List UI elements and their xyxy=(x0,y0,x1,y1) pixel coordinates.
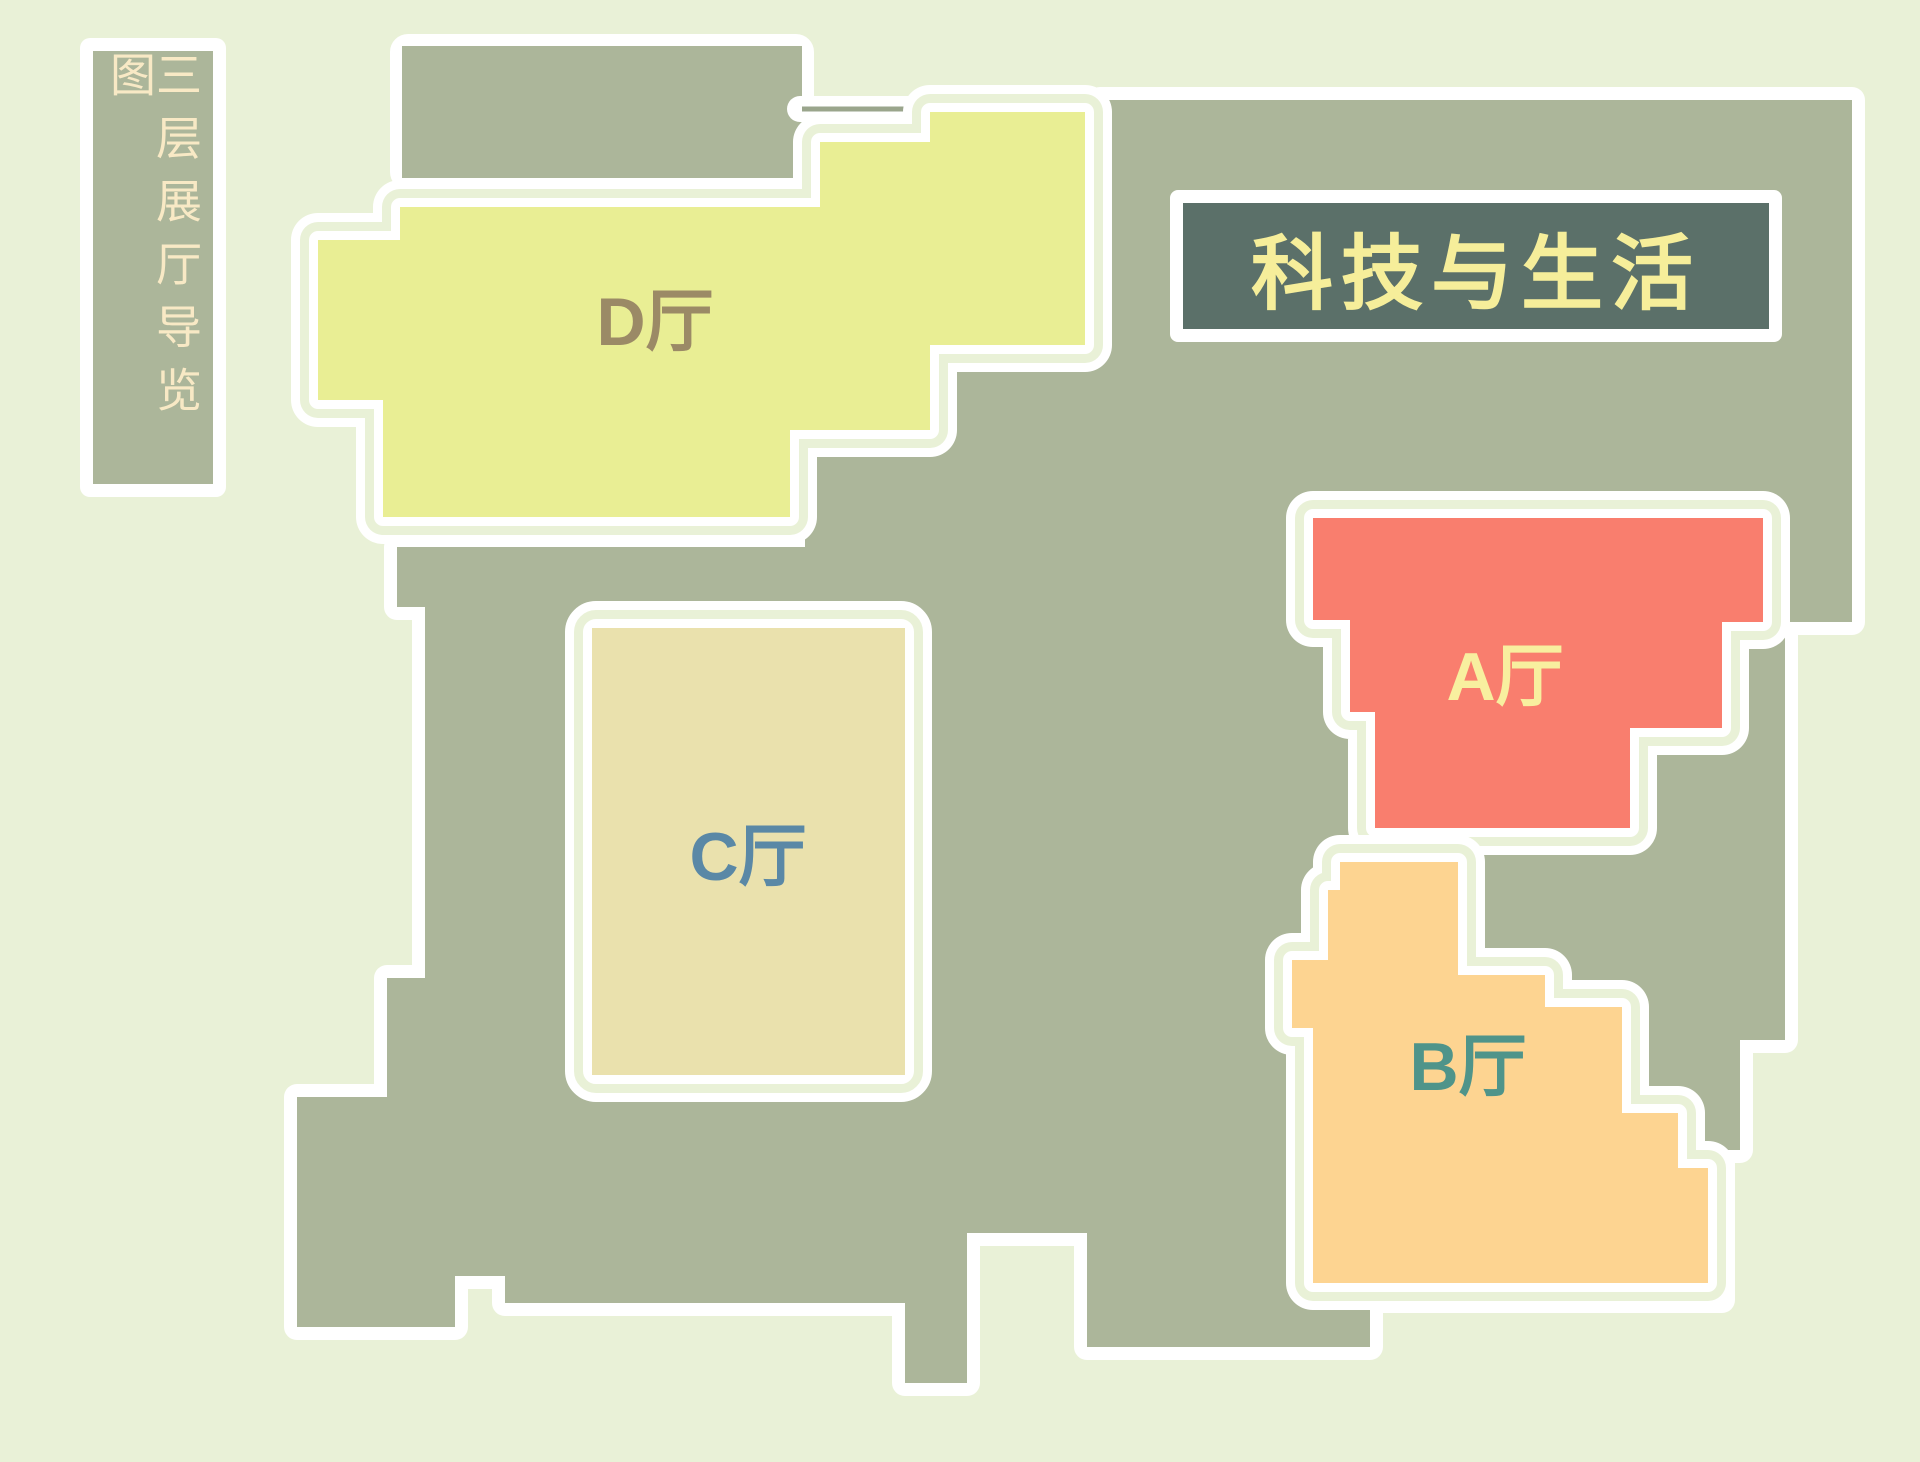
map-title: 三层展厅导览图 xyxy=(107,51,199,484)
theme-banner-label: 科技与生活 xyxy=(1251,207,1701,326)
theme-banner: 科技与生活 xyxy=(1170,190,1782,342)
hall-d-label: D厅 xyxy=(596,284,713,360)
hall-a-label: A厅 xyxy=(1446,639,1563,715)
hall-c-region[interactable]: C厅 xyxy=(592,628,905,1075)
floor-plan-page: D厅 C厅 A厅 B厅 三层展厅导览图 xyxy=(0,0,1920,1462)
hall-b-label: B厅 xyxy=(1409,1029,1526,1105)
hall-c-label: C厅 xyxy=(689,819,806,895)
map-title-box: 三层展厅导览图 xyxy=(80,38,226,497)
annex-fill xyxy=(402,46,802,178)
